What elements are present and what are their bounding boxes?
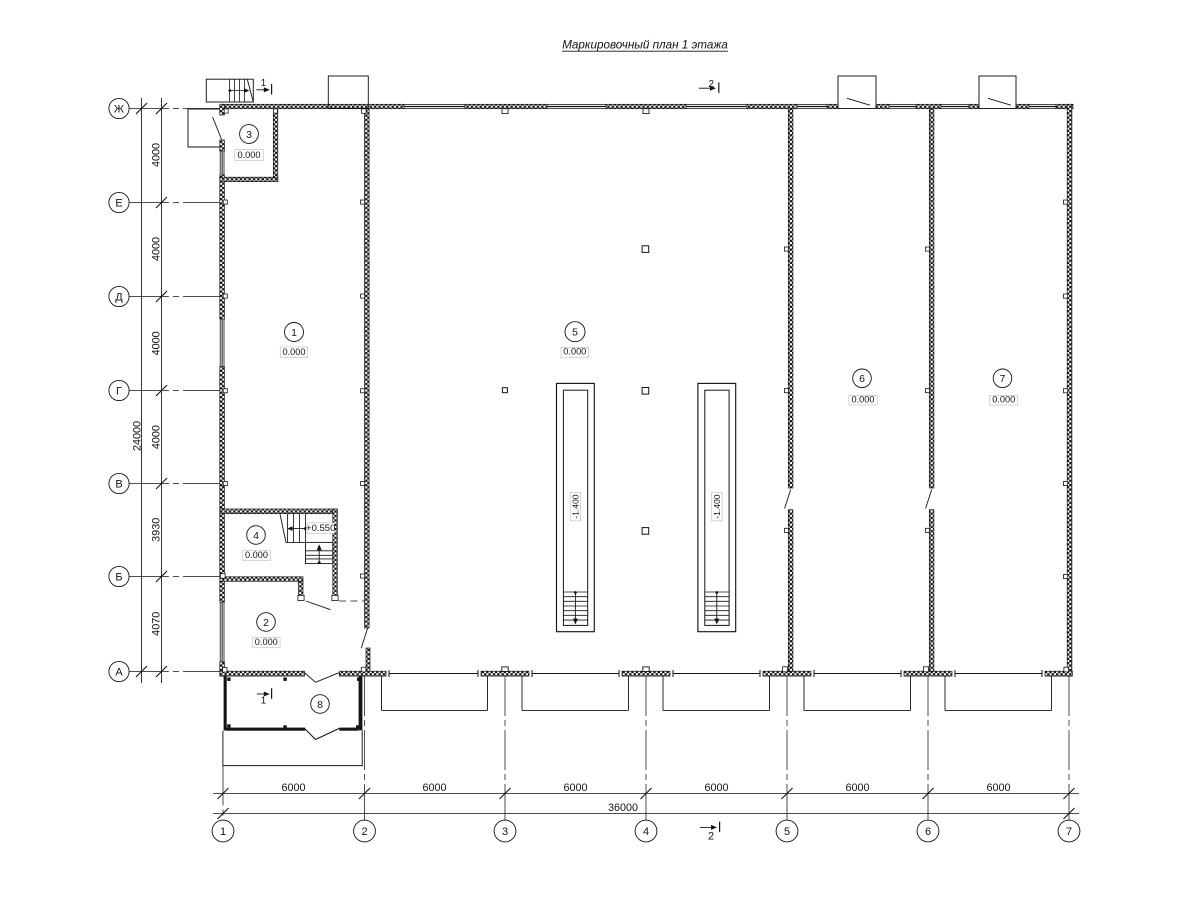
svg-text:1: 1 xyxy=(261,696,266,707)
svg-text:Маркировочный план 1 этажа: Маркировочный план 1 этажа xyxy=(562,39,728,52)
svg-text:6000: 6000 xyxy=(845,782,869,794)
svg-text:4000: 4000 xyxy=(151,143,163,167)
svg-text:3930: 3930 xyxy=(151,518,163,542)
svg-text:2: 2 xyxy=(263,617,269,629)
svg-text:2: 2 xyxy=(708,79,714,90)
svg-text:4000: 4000 xyxy=(151,425,163,449)
svg-text:Г: Г xyxy=(116,385,122,397)
svg-text:3: 3 xyxy=(502,826,508,838)
svg-text:2: 2 xyxy=(361,826,367,838)
svg-text:4: 4 xyxy=(253,530,259,542)
svg-text:6: 6 xyxy=(859,374,865,385)
svg-text:2: 2 xyxy=(708,830,714,842)
svg-text:В: В xyxy=(115,478,122,490)
svg-text:4: 4 xyxy=(643,826,649,838)
svg-text:-1.400: -1.400 xyxy=(571,494,581,519)
svg-text:6000: 6000 xyxy=(281,782,305,794)
svg-text:4000: 4000 xyxy=(151,331,163,355)
svg-text:6000: 6000 xyxy=(704,782,728,794)
svg-text:0.000: 0.000 xyxy=(283,347,306,357)
svg-text:1: 1 xyxy=(291,327,297,339)
svg-text:-1.400: -1.400 xyxy=(712,494,722,519)
svg-text:6000: 6000 xyxy=(563,782,587,794)
svg-text:Б: Б xyxy=(115,571,122,583)
svg-text:Е: Е xyxy=(115,197,122,209)
svg-text:4070: 4070 xyxy=(151,612,163,636)
svg-text:Ж: Ж xyxy=(114,103,124,115)
svg-text:0.000: 0.000 xyxy=(852,394,875,404)
svg-text:6000: 6000 xyxy=(986,782,1010,794)
svg-text:7: 7 xyxy=(1000,374,1006,385)
svg-text:0.000: 0.000 xyxy=(245,550,268,560)
svg-text:7: 7 xyxy=(1066,826,1072,838)
svg-text:1: 1 xyxy=(261,78,266,89)
svg-text:6: 6 xyxy=(925,826,931,838)
svg-text:3: 3 xyxy=(246,129,252,141)
svg-text:36000: 36000 xyxy=(608,802,638,814)
svg-text:4000: 4000 xyxy=(151,237,163,261)
svg-text:+0.550: +0.550 xyxy=(306,523,335,534)
svg-text:6000: 6000 xyxy=(422,782,446,794)
svg-text:5: 5 xyxy=(784,826,790,838)
svg-text:0.000: 0.000 xyxy=(992,394,1015,404)
svg-text:5: 5 xyxy=(572,328,578,339)
svg-text:0.000: 0.000 xyxy=(238,150,261,160)
svg-text:0.000: 0.000 xyxy=(255,637,278,647)
svg-text:0.000: 0.000 xyxy=(563,347,586,357)
svg-text:Д: Д xyxy=(115,291,123,303)
svg-text:А: А xyxy=(115,666,123,678)
svg-text:1: 1 xyxy=(220,826,226,838)
svg-text:24000: 24000 xyxy=(132,421,144,451)
svg-text:8: 8 xyxy=(317,699,323,711)
